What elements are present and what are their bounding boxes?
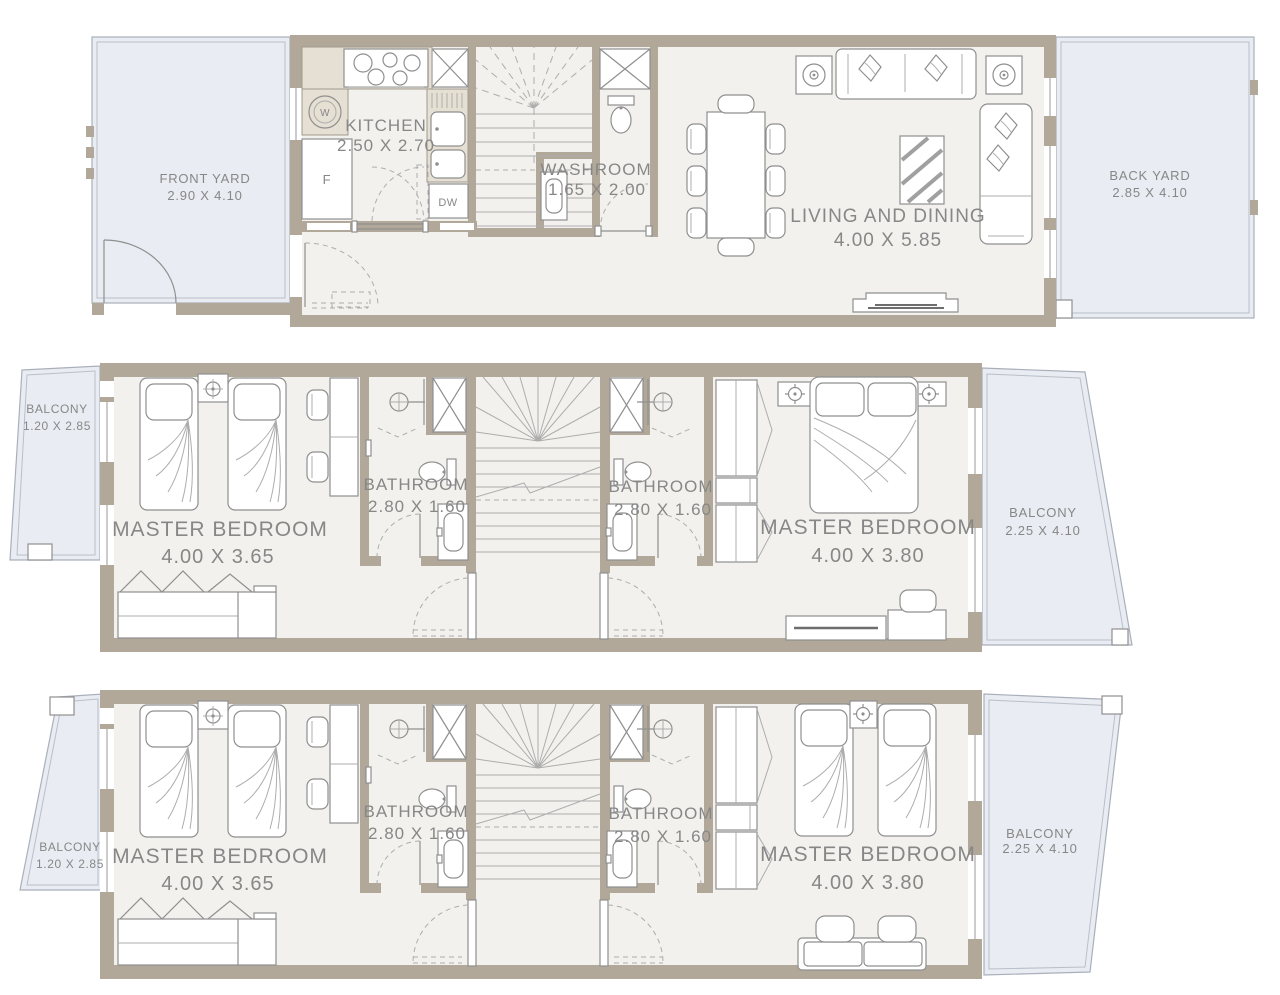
- balcony-label: BALCONY: [1006, 826, 1074, 841]
- tv-console: [853, 293, 958, 312]
- side-table: [796, 56, 832, 94]
- bedroom-label: MASTER BEDROOM: [760, 516, 976, 539]
- window: [1044, 78, 1056, 278]
- fridge-label: F: [323, 172, 332, 187]
- single-bed: [795, 704, 853, 836]
- living-dining-label: LIVING AND DINING: [790, 206, 985, 227]
- bedroom-dims: 4.00 X 3.80: [811, 545, 924, 567]
- front-yard-dims: 2.90 X 4.10: [167, 188, 242, 203]
- chair: [718, 238, 754, 256]
- tv-console: [786, 616, 886, 640]
- balcony-dims: 2.25 X 4.10: [1002, 841, 1077, 856]
- single-bed: [878, 704, 936, 836]
- double-bed: [810, 377, 918, 513]
- floor-plan-canvas: FRONT YARD 2.90 X 4.10 KITCHEN 2.50 X 2.…: [0, 0, 1280, 995]
- back-yard-dims: 2.85 X 4.10: [1112, 185, 1187, 200]
- balcony: [10, 366, 100, 560]
- bathroom-label: BATHROOM: [364, 475, 469, 494]
- third-floor-plan: BALCONY 1.20 X 2.85 MASTER BEDROOM 4.00 …: [20, 690, 1122, 979]
- floor-plan-drawing: FRONT YARD 2.90 X 4.10 KITCHEN 2.50 X 2.…: [0, 0, 1280, 995]
- back-yard-label: BACK YARD: [1109, 168, 1190, 183]
- bathroom-dims: 2.80 X 1.60: [368, 824, 466, 843]
- dishwasher-label: DW: [438, 197, 457, 209]
- chair: [687, 166, 706, 196]
- bathroom-dims: 2.80 X 1.60: [614, 500, 712, 519]
- chair: [687, 124, 706, 154]
- bathroom-label: BATHROOM: [364, 802, 469, 821]
- chair: [766, 166, 785, 196]
- balcony-label: BALCONY: [1009, 505, 1077, 520]
- bedroom-label: MASTER BEDROOM: [112, 845, 328, 868]
- chair: [900, 590, 936, 612]
- side-table: [986, 56, 1022, 94]
- armchair: [980, 104, 1032, 244]
- bathroom-dims: 2.80 X 1.60: [614, 827, 712, 846]
- balcony-dims: 1.20 X 2.85: [23, 419, 91, 433]
- chair: [687, 208, 706, 238]
- kitchen-dims: 2.50 X 2.70: [337, 136, 435, 155]
- living-dining-dims: 4.00 X 5.85: [834, 230, 942, 251]
- dining-table: [707, 112, 765, 238]
- washer-label: W: [320, 108, 330, 119]
- bedroom-dims: 4.00 X 3.80: [811, 872, 924, 894]
- kitchen-label: KITCHEN: [345, 116, 427, 135]
- bathroom-label: BATHROOM: [609, 477, 714, 496]
- rug: [900, 136, 944, 204]
- bathroom-label: BATHROOM: [609, 804, 714, 823]
- washroom-label: WASHROOM: [540, 160, 651, 179]
- washroom-dims: 1.65 X 2.00: [548, 180, 646, 199]
- balcony-dims: 2.25 X 4.10: [1005, 523, 1080, 538]
- sofa: [836, 49, 976, 99]
- front-yard-label: FRONT YARD: [159, 171, 250, 186]
- balcony-dims: 1.20 X 2.85: [36, 857, 104, 871]
- bathroom-dims: 2.80 X 1.60: [368, 497, 466, 516]
- bedroom-dims: 4.00 X 3.65: [161, 546, 274, 568]
- second-floor-plan: BALCONY 1.20 X 2.85 MASTER BEDROOM 4.00 …: [10, 363, 1132, 652]
- chair: [718, 95, 754, 113]
- bedroom-label: MASTER BEDROOM: [760, 843, 976, 866]
- stove-icon: [344, 49, 428, 87]
- bedroom-label: MASTER BEDROOM: [112, 518, 328, 541]
- ground-floor-plan: FRONT YARD 2.90 X 4.10 KITCHEN 2.50 X 2.…: [86, 35, 1258, 327]
- balcony-label: BALCONY: [26, 402, 88, 416]
- bedroom-dims: 4.00 X 3.65: [161, 873, 274, 895]
- chair: [766, 208, 785, 238]
- chair: [766, 124, 785, 154]
- balcony-label: BALCONY: [39, 840, 101, 854]
- window: [290, 88, 302, 140]
